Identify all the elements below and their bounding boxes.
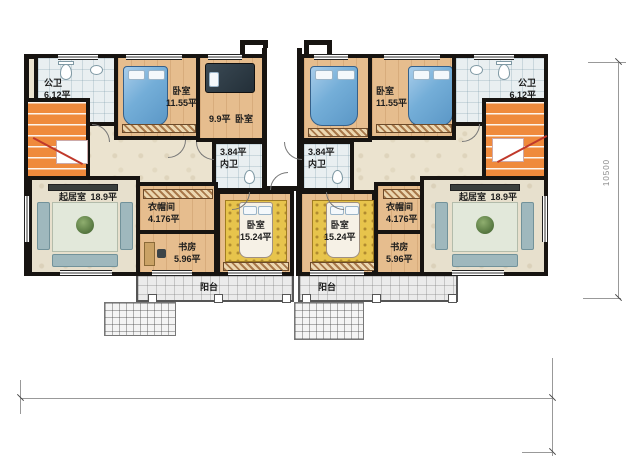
pillow-icon [345, 206, 359, 215]
room-label: 书房 5.96平 [386, 242, 413, 265]
window [60, 270, 112, 276]
dimension-height-label: 10500 [602, 159, 611, 186]
room-bedroom-9-left: 9.9平 卧室 [196, 54, 266, 142]
pillow-icon [148, 70, 165, 80]
window [384, 54, 440, 60]
room-inner-bath-right: 3.84平 内卫 [300, 140, 354, 192]
window [24, 196, 30, 242]
room-living-left: 起居室 18.9平 [28, 176, 140, 276]
balcony-column [372, 294, 381, 303]
floor-plan: 公卫 6.12平 卧室 11.55平 9.9平 卧室 3.84平 内卫 [0, 0, 640, 456]
sofa-icon [435, 202, 448, 250]
sliding-door [152, 270, 192, 276]
room-label: 书房 5.96平 [174, 242, 201, 265]
room-living-right: 起居室 18.9平 [420, 176, 548, 276]
pillow-icon [209, 72, 219, 87]
wardrobe-hatch [376, 124, 452, 133]
terrace-left [104, 302, 176, 336]
dimension-ext-corner [522, 452, 552, 453]
sofa-icon [52, 254, 118, 267]
window [474, 54, 514, 60]
sink-icon [90, 65, 103, 75]
balcony-column [448, 294, 457, 303]
sofa-icon [521, 202, 534, 250]
room-label: 3.84平 内卫 [308, 147, 335, 170]
window [126, 54, 182, 60]
room-bedroom-11-left: 卧室 11.55平 [114, 54, 200, 140]
sink-icon [470, 65, 483, 75]
pillow-icon [413, 70, 430, 80]
sofa-icon [452, 254, 518, 267]
balcony-column [282, 294, 291, 303]
desk-icon [144, 242, 155, 266]
double-bed-icon [408, 66, 453, 126]
balcony-label: 阳台 [318, 282, 336, 294]
plant-icon [76, 216, 94, 234]
room-cloak-left: 衣帽间 4.176平 [136, 182, 218, 234]
pillow-icon [243, 206, 257, 215]
sliding-door [228, 270, 282, 276]
tv-cabinet-icon [48, 184, 118, 191]
dimension-line-vertical [618, 62, 619, 298]
sofa-icon [37, 202, 50, 250]
sofa-icon [120, 202, 133, 250]
dimension-ext-right [552, 358, 553, 456]
room-label: 9.9平 卧室 [203, 114, 259, 126]
window [452, 270, 504, 276]
room-label: 起居室 18.9平 [44, 192, 132, 204]
single-bed-icon [205, 63, 255, 93]
balcony-column [214, 294, 223, 303]
room-label: 起居室 18.9平 [440, 192, 536, 204]
tv-cabinet-icon [450, 184, 520, 191]
pillow-icon [315, 70, 333, 80]
toilet-icon [498, 64, 510, 80]
toilet-icon [244, 170, 255, 184]
chair-icon [157, 249, 166, 258]
center-void [262, 48, 302, 191]
room-label: 卧室 11.55平 [376, 86, 407, 109]
room-label: 3.84平 内卫 [220, 147, 247, 170]
room-label: 衣帽间 4.176平 [386, 202, 418, 225]
pillow-icon [128, 70, 145, 80]
toilet-icon [332, 170, 343, 184]
room-label: 卧室 15.24平 [324, 220, 356, 243]
pillow-icon [337, 70, 355, 80]
room-bedroom-15-left: 卧室 15.24平 [216, 190, 294, 276]
window [542, 196, 548, 242]
room-label: 衣帽间 4.176平 [148, 202, 180, 225]
room-label: 卧室 15.24平 [240, 220, 272, 243]
toilet-tank-icon [496, 61, 512, 65]
double-bed-icon [310, 66, 358, 126]
pillow-icon [433, 70, 450, 80]
wardrobe-hatch [143, 189, 213, 199]
pillow-icon [258, 206, 272, 215]
dimension-line-horizontal [20, 398, 552, 399]
plant-icon [476, 216, 494, 234]
room-label: 卧室 11.55平 [166, 86, 197, 109]
room-inner-bath-left: 3.84平 内卫 [212, 140, 266, 192]
window [58, 54, 98, 60]
wardrobe-hatch [308, 128, 368, 137]
wardrobe-hatch [122, 124, 196, 133]
balcony-label: 阳台 [200, 282, 218, 294]
dimension-ext-bottom [583, 298, 621, 299]
sliding-door [310, 270, 364, 276]
window [208, 54, 242, 60]
room-bedroom-near-center-right [300, 54, 372, 142]
toilet-tank-icon [58, 61, 74, 65]
room-bedroom-11-right: 卧室 11.55平 [368, 54, 456, 140]
terrace-right [294, 302, 364, 340]
window [314, 54, 348, 60]
double-bed-icon [123, 66, 168, 126]
